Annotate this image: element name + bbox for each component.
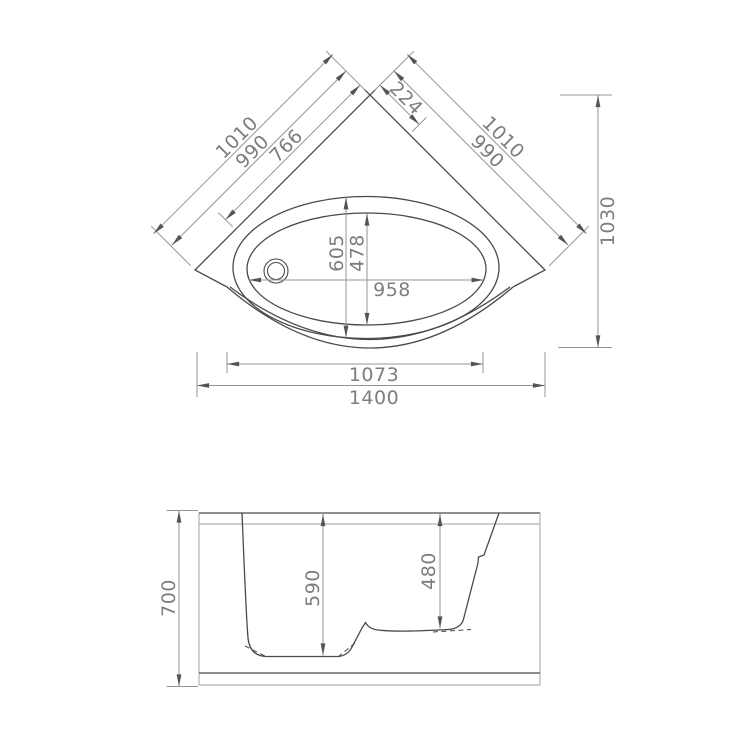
technical-drawing-page: 1010 990 766 224 1010 990 1030 605 478 9…	[0, 0, 750, 750]
dim-label-1400: 1400	[349, 387, 399, 409]
tub-section-profile	[242, 513, 499, 657]
dim-label-605: 605	[326, 234, 348, 272]
dim-label-1030: 1030	[597, 196, 619, 246]
dim-label-958: 958	[373, 279, 411, 301]
dim-label-right-224: 224	[385, 77, 427, 119]
dashed-corner-left	[245, 646, 267, 657]
drain-circle-inner	[268, 263, 285, 280]
dim-label-478: 478	[347, 234, 369, 272]
dim-label-480: 480	[418, 552, 440, 590]
dashed-corner-right	[338, 643, 355, 657]
side-view: 700 590 480	[158, 511, 540, 687]
tub-right-wall	[364, 89, 545, 287]
dim-label-1073: 1073	[349, 364, 399, 386]
dim-label-left-766: 766	[265, 125, 307, 167]
top-view: 1010 990 766 224 1010 990 1030 605 478 9…	[151, 51, 619, 409]
dim-label-590: 590	[302, 569, 324, 607]
bathtub-drawing-canvas: 1010 990 766 224 1010 990 1030 605 478 9…	[0, 0, 750, 750]
dim-label-700: 700	[158, 579, 180, 617]
